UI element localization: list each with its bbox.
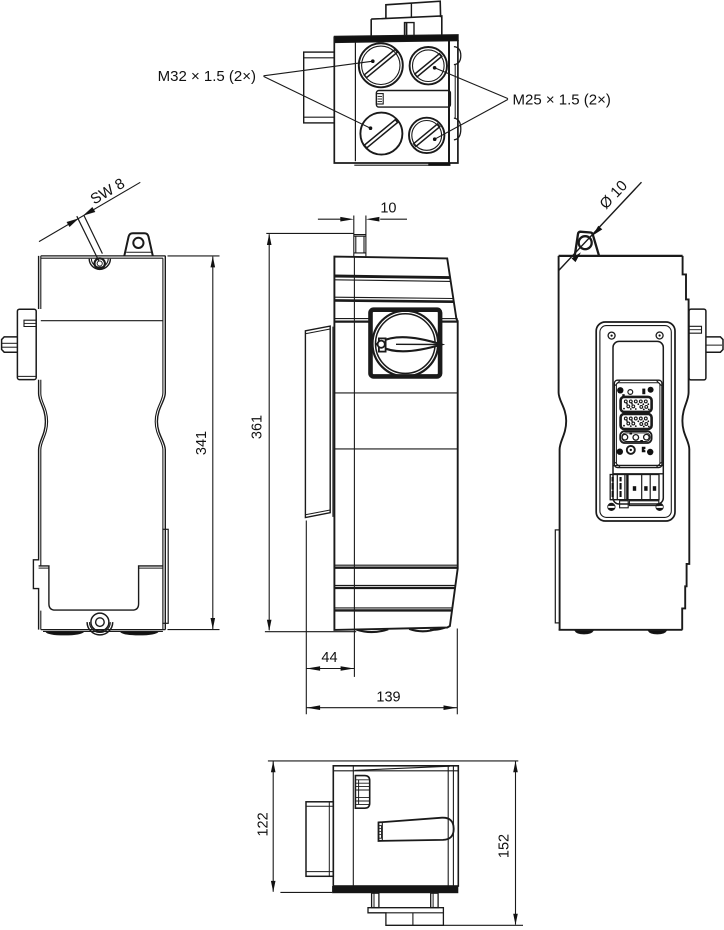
svg-text:M32 × 1.5 (2×): M32 × 1.5 (2×) [158,68,256,85]
svg-text:10: 10 [380,200,396,216]
svg-text:341: 341 [194,431,210,455]
svg-text:44: 44 [321,650,337,666]
svg-text:SW 8: SW 8 [88,175,128,208]
svg-text:Ø 10: Ø 10 [596,177,631,212]
svg-text:M25 × 1.5 (2×): M25 × 1.5 (2×) [513,92,611,109]
svg-text:361: 361 [249,415,265,439]
svg-text:122: 122 [255,812,271,836]
svg-text:139: 139 [376,690,400,706]
svg-text:152: 152 [497,834,513,858]
